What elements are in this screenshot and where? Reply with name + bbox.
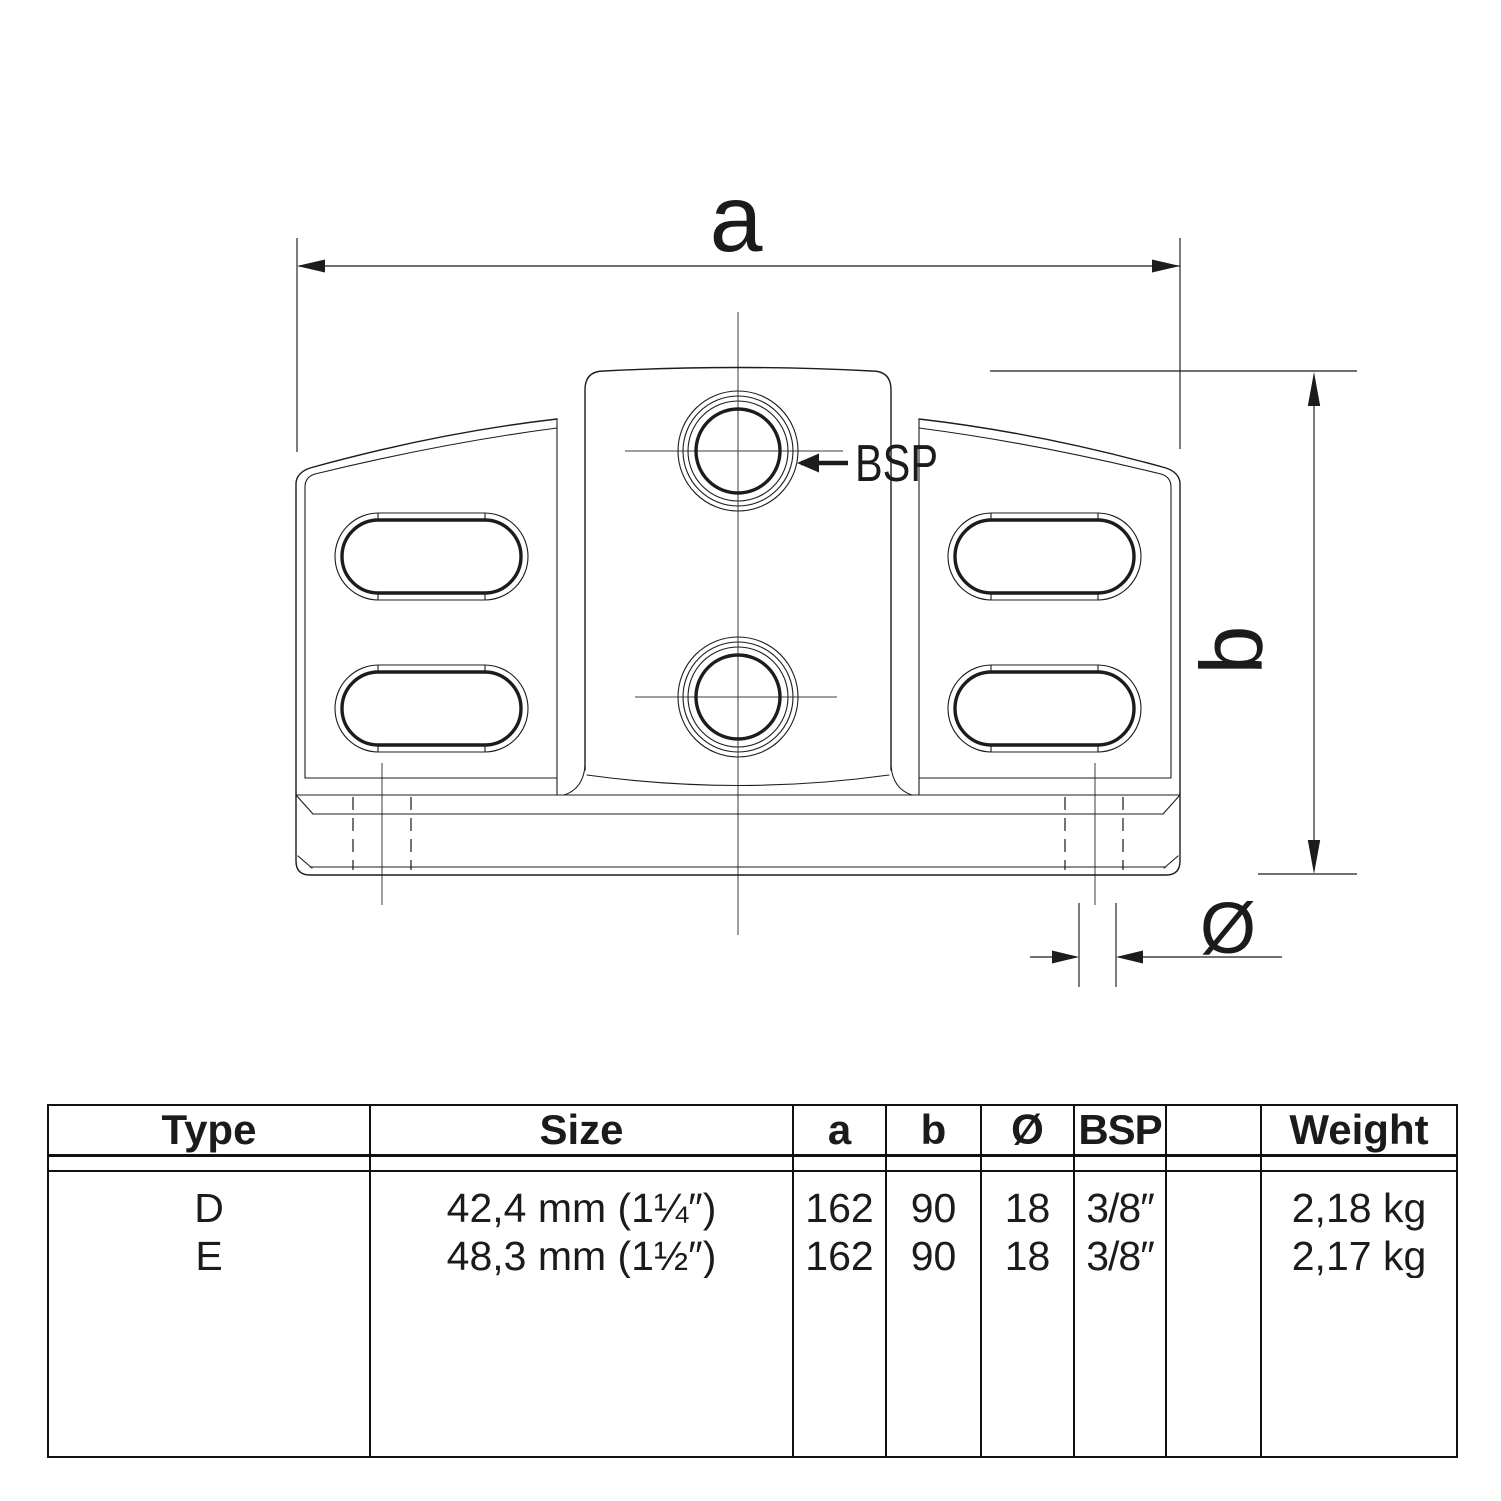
cell-a: 162 bbox=[793, 1171, 886, 1234]
dim-a-arrow-right bbox=[1152, 260, 1180, 273]
spec-table: Type Size a b Ø BSP Weight D 42,4 mm (1¼… bbox=[47, 1104, 1458, 1458]
cell-spare bbox=[1166, 1171, 1261, 1234]
bsp-callout: BSP bbox=[797, 435, 938, 493]
slot-lower-right bbox=[948, 665, 1141, 752]
left-wing bbox=[296, 419, 557, 795]
cell-weight: 2,17 kg bbox=[1261, 1234, 1457, 1278]
dim-dia-arrow-left bbox=[1052, 951, 1079, 964]
bsp-leader-arrow bbox=[797, 454, 819, 473]
col-header-weight: Weight bbox=[1261, 1105, 1457, 1156]
spec-table-header-row: Type Size a b Ø BSP Weight bbox=[48, 1105, 1457, 1156]
cell-type: D bbox=[48, 1171, 370, 1234]
col-header-type: Type bbox=[48, 1105, 370, 1156]
col-header-b: b bbox=[886, 1105, 981, 1156]
dim-dia-label: Ø bbox=[1200, 889, 1256, 969]
boss-left-fillet bbox=[564, 766, 585, 795]
cell-type: E bbox=[48, 1234, 370, 1278]
dim-b-arrow-bottom bbox=[1308, 840, 1320, 874]
table-row-type-d: D 42,4 mm (1¼″) 162 90 18 3/8″ 2,18 kg bbox=[48, 1171, 1457, 1234]
cell-b: 90 bbox=[886, 1171, 981, 1234]
table-row-type-e: E 48,3 mm (1½″) 162 90 18 3/8″ 2,17 kg bbox=[48, 1234, 1457, 1278]
col-header-spare bbox=[1166, 1105, 1261, 1156]
cell-weight: 2,18 kg bbox=[1261, 1171, 1457, 1234]
cell-bsp: 3/8″ bbox=[1074, 1234, 1166, 1278]
cell-size: 42,4 mm (1¼″) bbox=[370, 1171, 793, 1234]
table-filler-row bbox=[48, 1278, 1457, 1457]
col-header-a: a bbox=[793, 1105, 886, 1156]
cell-bsp: 3/8″ bbox=[1074, 1171, 1166, 1234]
dim-dia-arrow-right bbox=[1116, 951, 1143, 964]
slot-upper-right bbox=[948, 513, 1141, 600]
dim-b-arrow-top bbox=[1308, 372, 1320, 406]
cell-b: 90 bbox=[886, 1234, 981, 1278]
slot-upper-left bbox=[335, 513, 528, 600]
dim-a-arrow-left bbox=[297, 260, 325, 273]
dim-b-label: b bbox=[1182, 626, 1281, 675]
col-header-dia: Ø bbox=[981, 1105, 1074, 1156]
slot-lower-left bbox=[335, 665, 528, 752]
right-wing bbox=[919, 419, 1180, 795]
col-header-size: Size bbox=[370, 1105, 793, 1156]
cell-a: 162 bbox=[793, 1234, 886, 1278]
boss-right-fillet bbox=[891, 766, 912, 795]
cell-dia: 18 bbox=[981, 1234, 1074, 1278]
col-header-bsp: BSP bbox=[1074, 1105, 1166, 1156]
cell-spare bbox=[1166, 1234, 1261, 1278]
cell-dia: 18 bbox=[981, 1171, 1074, 1234]
dimension-diameter: Ø bbox=[1030, 889, 1282, 987]
bsp-label: BSP bbox=[855, 435, 938, 493]
header-double-rule-gap bbox=[48, 1156, 1457, 1172]
dim-a-label: a bbox=[710, 166, 763, 272]
page: { "drawing": { "dim_a_label": "a", "dim_… bbox=[0, 0, 1501, 1501]
dimension-b: b bbox=[990, 371, 1357, 874]
centerlines bbox=[382, 312, 1095, 935]
cell-size: 48,3 mm (1½″) bbox=[370, 1234, 793, 1278]
